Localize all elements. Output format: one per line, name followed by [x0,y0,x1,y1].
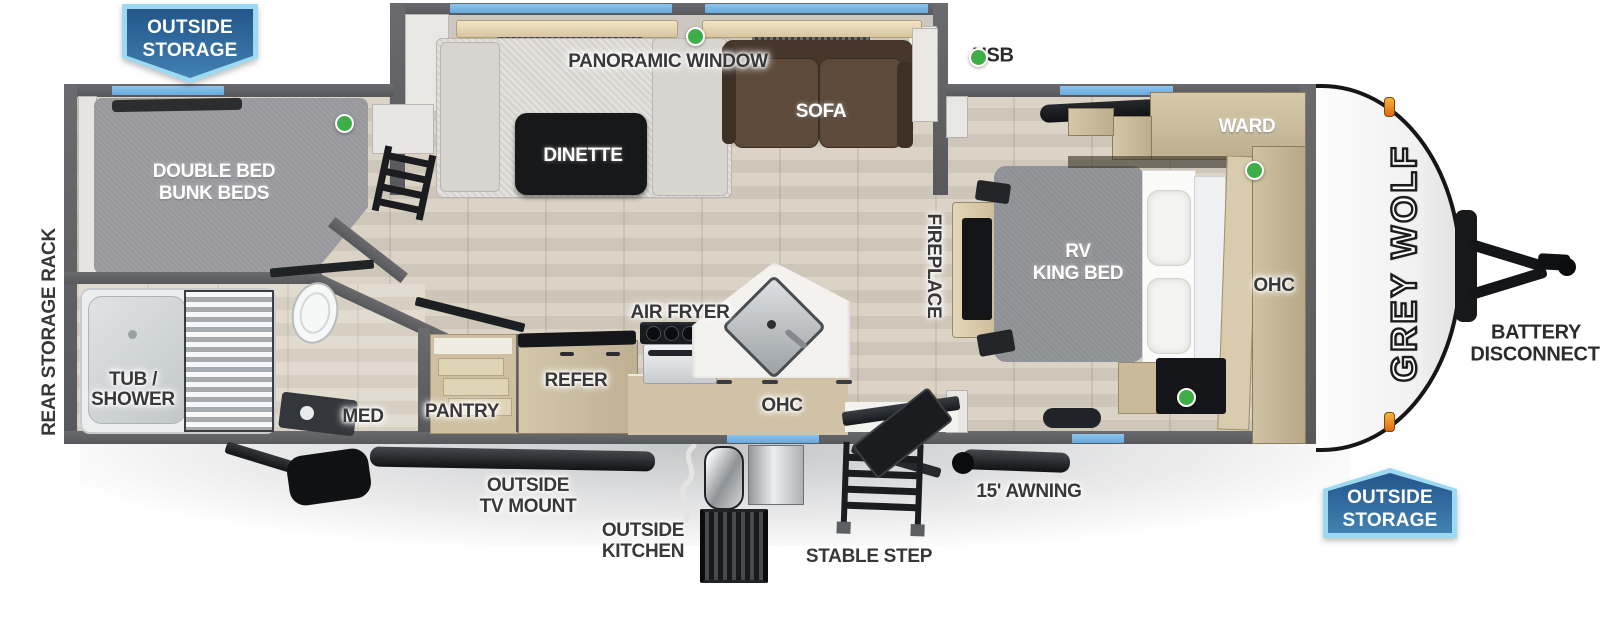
window-top-rear [112,86,224,95]
badge-line2: STORAGE [122,39,258,62]
bed-pillow [1147,278,1191,354]
usb-dot-slideout [686,27,705,46]
bed-pillow [1147,190,1191,266]
label-ohc-kitchen: OHC [761,395,802,417]
sofa-corner-shelf [912,28,938,122]
label-panoramic-window: PANORAMIC WINDOW [568,51,768,73]
hitch-post [1455,210,1477,322]
ohc-cabinet-mid [1112,116,1152,160]
step-rung [844,486,920,496]
valance-sofa [702,20,922,38]
hitch-knob [1558,258,1576,276]
badge-text: OUTSIDE STORAGE [122,16,258,62]
label-refer: REFER [545,370,608,392]
bedroom-floor-bar [1043,408,1101,428]
label-outside-kitchen-line2: KITCHEN [602,541,684,563]
label-rear-storage-rack: REAR STORAGE RACK [39,228,61,436]
label-bunk-line1: DOUBLE BED [153,161,276,183]
badge-outside-storage-top: OUTSIDE STORAGE [122,4,258,83]
step-foot-right [910,524,924,536]
divider-wall-top [946,96,968,138]
sofa-arm-right [897,62,913,148]
step-rung [843,502,919,512]
label-fireplace: FIREPLACE [922,214,944,319]
label-tv-mount-line1: OUTSIDE [487,475,569,497]
range-burner [646,326,661,341]
usb-dot-nightstand [1177,388,1196,407]
window-bottom-kitchen [727,434,819,443]
label-pantry: PANTRY [425,401,499,423]
awning-roller [962,449,1071,473]
hitch-arm-bottom [1466,266,1548,300]
slideout-window-right [705,4,928,13]
badge-line2: STORAGE [1323,509,1457,532]
floorplan-canvas: GREY WOLF PANORAMIC WINDOW DINETTE SOF [0,0,1600,630]
label-ohc-bedroom: OHC [1253,275,1294,297]
label-stable-step: STABLE STEP [806,546,932,568]
label-awning: 15' AWNING [976,481,1081,503]
label-bed-line2: KING BED [1033,263,1124,285]
badge-text: OUTSIDE STORAGE [1323,486,1457,532]
counter-handle [836,380,852,384]
counter-handle [716,380,732,384]
refer-handle [606,352,620,356]
shower-glass [184,290,274,432]
nightstand-wood [1118,362,1158,414]
badge-line1: OUTSIDE [1323,486,1457,509]
label-sofa: SOFA [796,101,847,123]
outside-grill [700,509,768,583]
usb-dot-legend [969,48,988,67]
valance-dinette [456,20,678,38]
awning-roller-cap [952,452,974,474]
ladder-rung [384,168,427,184]
dinette-bench-left [440,42,500,192]
range-burner [664,326,679,341]
label-battery-line2: DISCONNECT [1470,344,1599,367]
hitch-arm-top [1466,238,1548,272]
pantry-top-band [434,338,512,354]
ladder-rung [388,152,431,168]
outside-kitchen-panel [748,445,804,505]
med-sink-bowl [300,406,314,420]
label-med: MED [342,406,383,428]
usb-dot-bunk [335,114,354,133]
label-tv-mount-line2: TV MOUNT [480,496,577,518]
bunk-headboard-strip [112,98,242,112]
fireplace-screen [962,218,992,320]
brand-logo: GREY WOLF [1385,133,1425,393]
badge-line1: OUTSIDE [122,16,258,39]
sink-drain [767,320,776,329]
label-tub-line1: TUB / [109,369,157,391]
slideout-window-left [450,4,672,13]
ladder-rung [378,198,421,214]
marker-light-bottom [1384,412,1395,432]
label-outside-kitchen-line1: OUTSIDE [602,520,684,542]
counter-handle [762,380,778,384]
label-dinette: DINETTE [543,145,622,167]
label-air-fryer: AIR FRYER [631,302,730,324]
label-ward: WARD [1219,116,1276,138]
marker-light-top [1384,97,1395,117]
ohc-cabinet-small [1068,108,1114,136]
pantry-shelf [438,358,504,376]
badge-outside-storage-bottom: OUTSIDE STORAGE [1323,468,1457,538]
window-bottom-bedroom [1072,434,1124,443]
tub-drain [128,330,137,339]
refer-handle [560,352,574,356]
pantry-shelf [443,378,509,396]
label-battery-line1: BATTERY [1491,322,1581,345]
step-foot-left [836,521,850,533]
label-bed-line1: RV [1065,241,1090,263]
ladder-rung [381,184,424,200]
wall-rear [64,84,77,444]
label-bunk-line2: BUNK BEDS [159,183,269,205]
outside-griddle [704,446,744,510]
label-tub-line2: SHOWER [91,389,175,411]
usb-dot-ward [1245,161,1264,180]
bunk-wall-panel [372,104,434,154]
outside-kitchen-cord [672,444,706,524]
